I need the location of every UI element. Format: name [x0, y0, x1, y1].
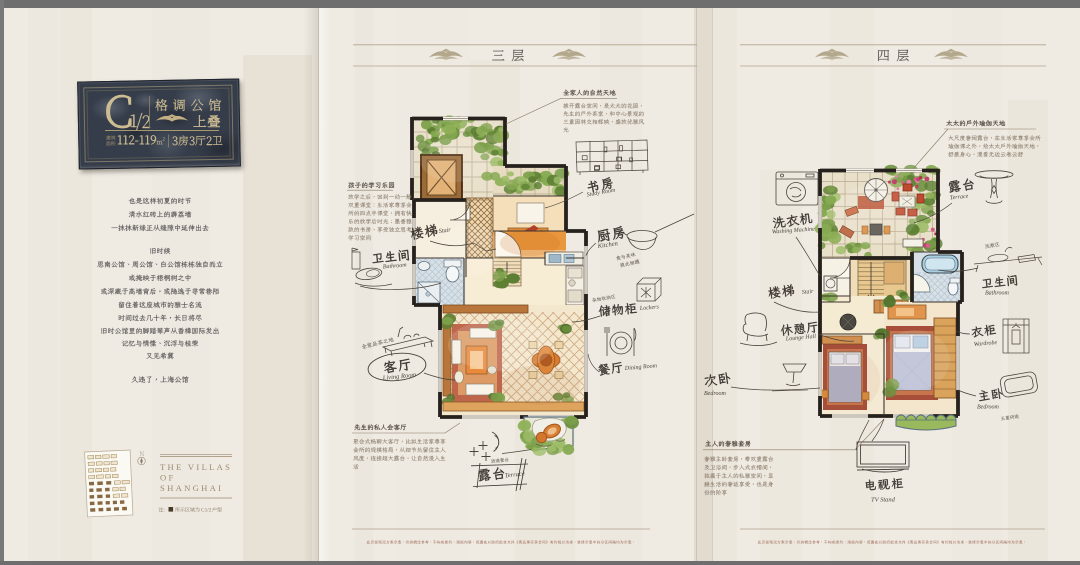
- svg-text:THE VILLAS: THE VILLAS: [160, 462, 232, 472]
- svg-text:Kitchen: Kitchen: [596, 240, 618, 250]
- svg-text:Bedroom: Bedroom: [977, 405, 999, 411]
- svg-text:Dining Room: Dining Room: [624, 363, 658, 372]
- svg-text:Stair: Stair: [802, 289, 815, 296]
- svg-text:Lockers: Lockers: [639, 304, 660, 312]
- svg-text:Bathroom: Bathroom: [985, 291, 1009, 297]
- svg-text:Bedroom: Bedroom: [704, 391, 726, 397]
- svg-text:Wardrobe: Wardrobe: [974, 340, 998, 348]
- svg-text:Terrace: Terrace: [950, 194, 969, 202]
- svg-text:Bathroom: Bathroom: [383, 262, 408, 270]
- svg-text:Washing Machine: Washing Machine: [772, 226, 816, 235]
- svg-text:C1/2: C1/2: [201, 508, 212, 514]
- svg-text:SHANGHAI: SHANGHAI: [160, 483, 223, 493]
- svg-text:TV Stand: TV Stand: [871, 497, 896, 504]
- svg-text:Study Room: Study Room: [586, 187, 616, 198]
- svg-text:OF: OF: [160, 473, 176, 483]
- svg-text:Lounge Hall: Lounge Hall: [785, 334, 817, 343]
